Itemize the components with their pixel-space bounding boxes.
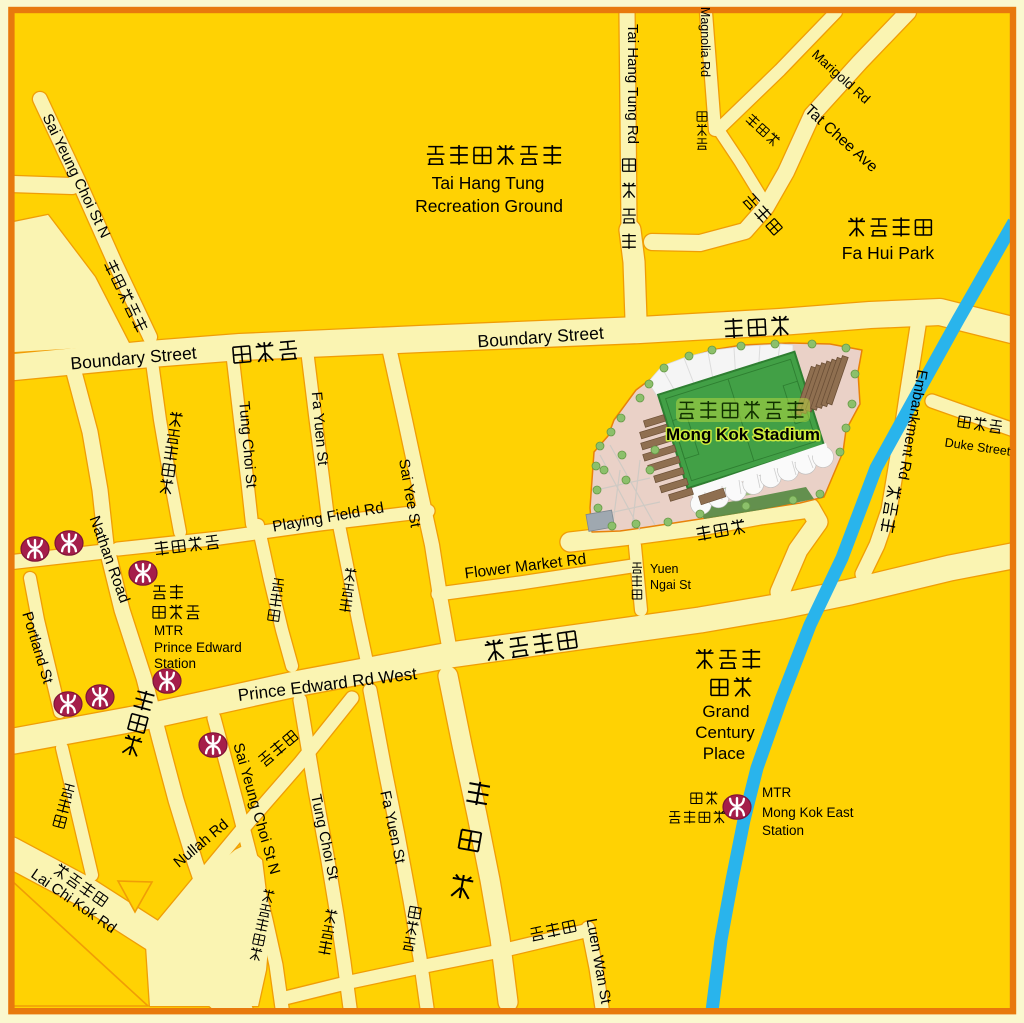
svg-text:Fa Hui Park: Fa Hui Park xyxy=(842,243,935,263)
svg-text:Ngai St: Ngai St xyxy=(650,578,692,592)
svg-text:MTR: MTR xyxy=(762,785,791,800)
svg-text:Grand: Grand xyxy=(702,702,749,721)
svg-text:Place: Place xyxy=(703,744,746,763)
svg-text:Recreation Ground: Recreation Ground xyxy=(415,196,563,216)
svg-text:MTR: MTR xyxy=(154,623,183,638)
svg-text:Magnolia Rd: Magnolia Rd xyxy=(698,7,712,77)
svg-text:Station: Station xyxy=(154,656,196,671)
svg-text:Yuen: Yuen xyxy=(650,562,679,576)
svg-text:Century: Century xyxy=(695,723,755,742)
svg-text:Station: Station xyxy=(762,823,804,838)
svg-text:Tai Hang Tung Rd: Tai Hang Tung Rd xyxy=(624,24,641,144)
svg-text:Prince Edward: Prince Edward xyxy=(154,640,242,655)
svg-text:Mong Kok Stadium: Mong Kok Stadium xyxy=(666,425,820,444)
svg-text:Tai Hang Tung: Tai Hang Tung xyxy=(432,173,545,193)
svg-text:Mong Kok East: Mong Kok East xyxy=(762,805,854,820)
